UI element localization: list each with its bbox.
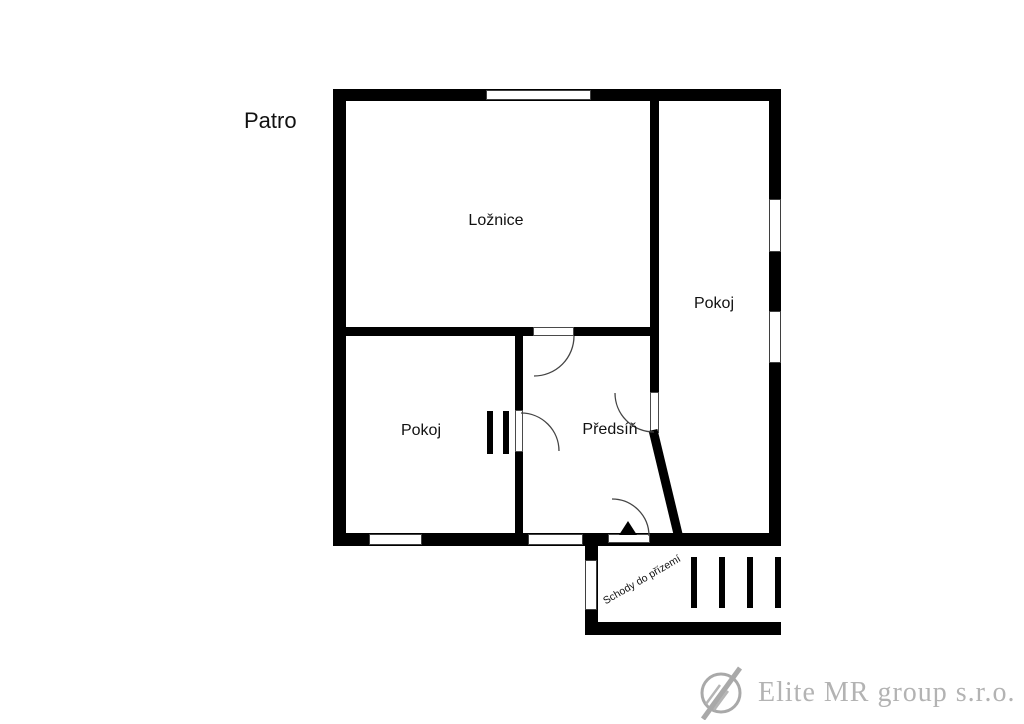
door-pokoj-left-arc	[521, 413, 559, 451]
stairs-label: Schody do přízemí	[601, 553, 683, 607]
door-pokoj-right-leaf	[650, 392, 659, 433]
door-stairs-leaf	[608, 534, 650, 543]
door-stairs-arc	[612, 499, 649, 536]
wall-divider-right	[650, 101, 659, 432]
floorplan-canvas: Patro Ložnice Pokoj Pok	[0, 0, 1024, 724]
window-right-upper	[769, 199, 781, 252]
chimney-bar-right	[503, 411, 509, 454]
window-right-lower	[769, 311, 781, 363]
wall-left	[333, 89, 346, 546]
window-top	[486, 90, 591, 100]
watermark: Elite MR group s.r.o.	[694, 666, 1015, 720]
wall-loznice-bottom	[333, 327, 659, 336]
company-logo-icon	[694, 666, 748, 720]
wall-diagonal	[653, 430, 678, 534]
page-title: Patro	[244, 108, 297, 134]
plan-linework	[0, 0, 1024, 724]
room-label-pokoj-right: Pokoj	[694, 295, 734, 313]
door-loznice-leaf	[533, 327, 574, 336]
window-bottom-center	[528, 534, 583, 545]
door-pokoj-left-leaf	[515, 410, 523, 452]
door-loznice-arc	[534, 336, 574, 376]
chimney-bar-left	[487, 411, 493, 454]
wall-stairs-bottom	[585, 622, 781, 635]
window-stairs	[585, 560, 597, 610]
watermark-company-name: Elite MR group s.r.o.	[758, 677, 1015, 709]
room-label-loznice: Ložnice	[468, 212, 523, 230]
window-bottom-left	[369, 534, 422, 545]
room-label-predsin: Předsíň	[582, 421, 637, 439]
room-label-pokoj-left: Pokoj	[401, 422, 441, 440]
